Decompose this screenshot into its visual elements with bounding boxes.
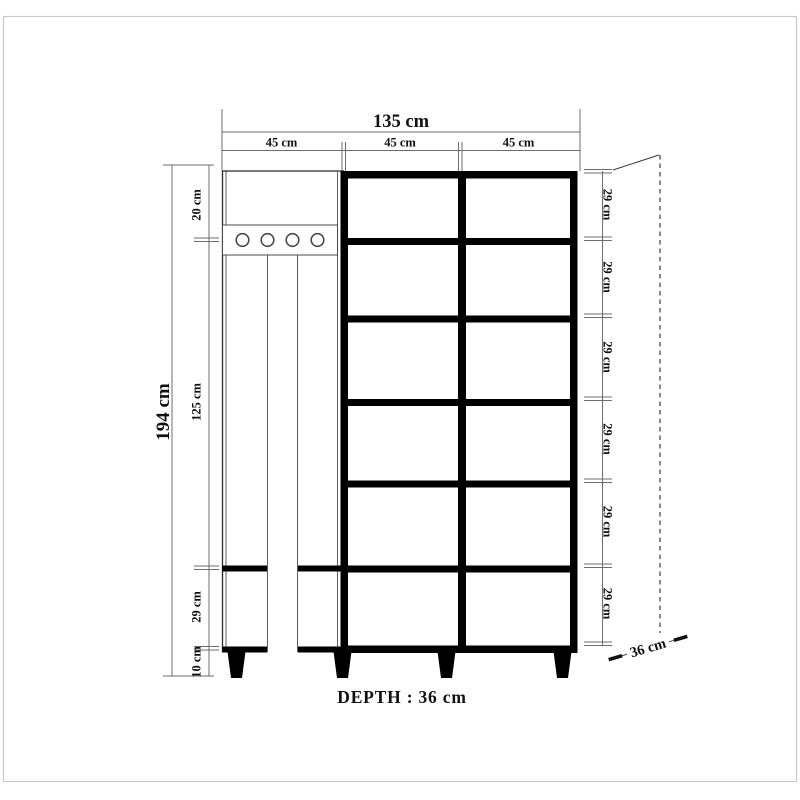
depth-arrowhead-left-icon bbox=[609, 656, 622, 660]
dim-shelf-height-5-label: 29 cm bbox=[601, 506, 615, 538]
hook-1-icon bbox=[236, 234, 249, 247]
hook-3-icon bbox=[286, 234, 299, 247]
depth-projection-edge bbox=[613, 155, 659, 170]
dim-segment-20-label: 20 cm bbox=[190, 189, 204, 221]
dim-segment-10-label: 10 cm bbox=[190, 646, 204, 678]
dim-shelf-height-4-label: 29 cm bbox=[601, 423, 615, 455]
dim-depth-arrow-label: 36 cm bbox=[628, 636, 668, 662]
hook-2-icon bbox=[261, 234, 274, 247]
diagram-canvas: 135 cm 45 cm 45 cm 45 cm 194 cm 20 cm 12… bbox=[0, 0, 800, 800]
leg-1 bbox=[228, 652, 246, 679]
dim-section-width-3-label: 45 cm bbox=[503, 136, 535, 150]
dim-shelf-height-3-label: 29 cm bbox=[601, 341, 615, 373]
furniture-dimension-diagram: 135 cm 45 cm 45 cm 45 cm 194 cm 20 cm 12… bbox=[0, 0, 800, 800]
depth-caption: DEPTH : 36 cm bbox=[337, 687, 466, 707]
dim-shelf-height-6-label: 29 cm bbox=[601, 588, 615, 620]
leg-2 bbox=[334, 652, 352, 679]
depth-arrow-group: 36 cm bbox=[606, 628, 689, 668]
depth-arrowhead-right-icon bbox=[674, 636, 687, 640]
dim-total-width-label: 135 cm bbox=[373, 112, 430, 132]
dim-segment-125-label: 125 cm bbox=[190, 382, 204, 420]
dim-segment-29-label: 29 cm bbox=[190, 591, 204, 623]
hook-4-icon bbox=[311, 234, 324, 247]
dim-total-height-label: 194 cm bbox=[153, 383, 174, 441]
leg-3 bbox=[438, 652, 456, 679]
dim-section-width-1-label: 45 cm bbox=[266, 136, 298, 150]
dim-shelf-height-2-label: 29 cm bbox=[601, 261, 615, 293]
dim-section-width-2-label: 45 cm bbox=[384, 136, 416, 150]
dim-shelf-height-1-label: 29 cm bbox=[601, 189, 615, 221]
leg-4 bbox=[554, 652, 572, 679]
